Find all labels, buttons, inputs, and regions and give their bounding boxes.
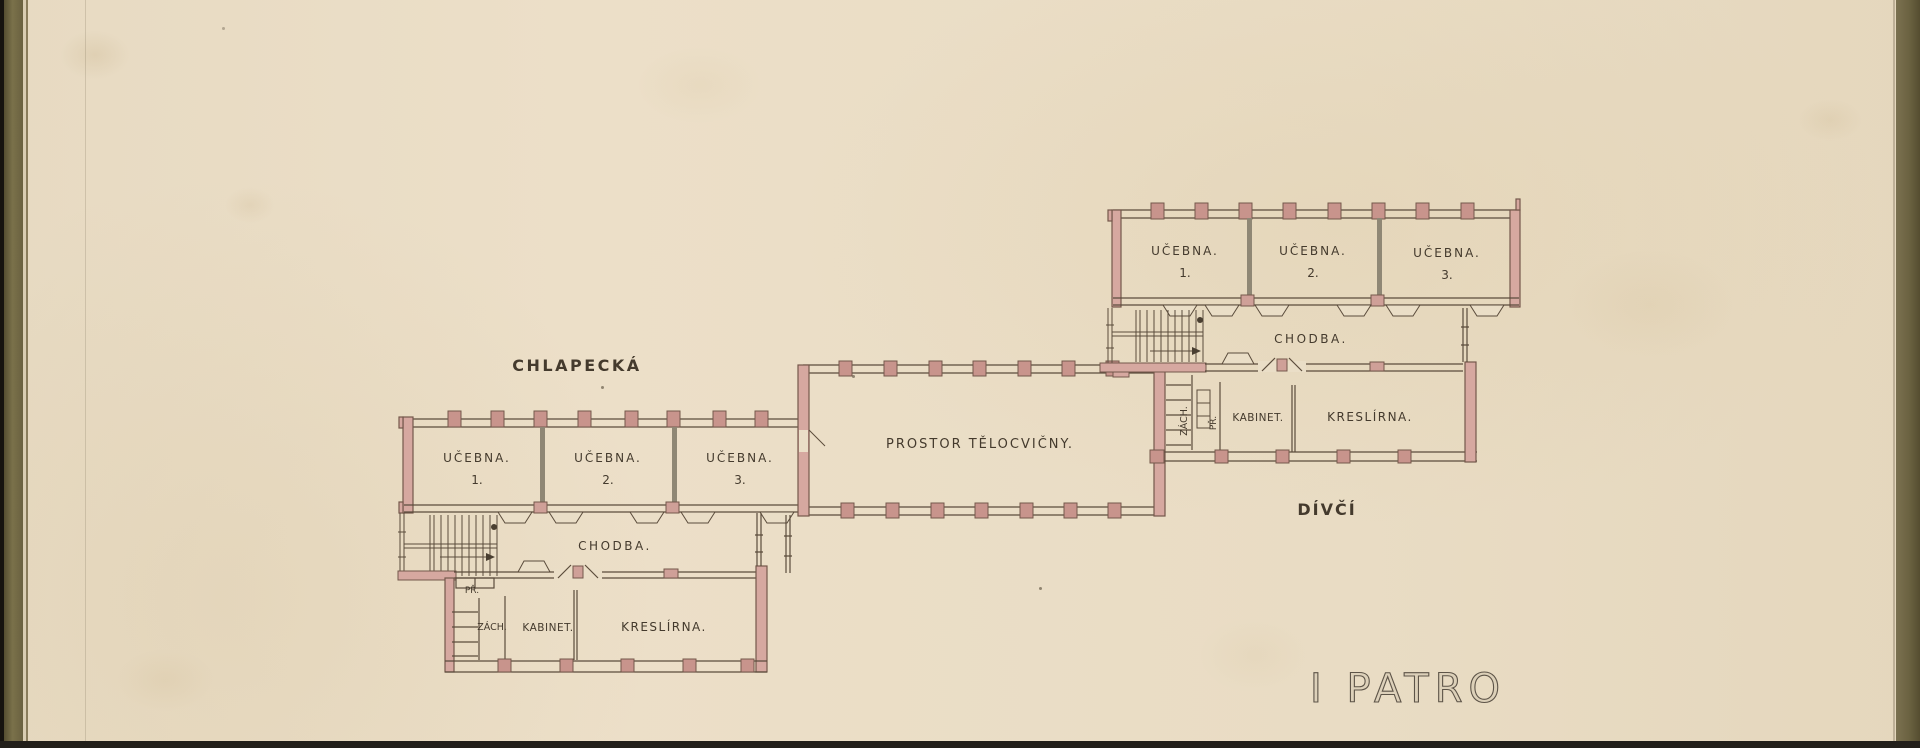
bottom-shadow-band bbox=[0, 741, 1920, 748]
gym-label: PROSTOR TĚLOCVIČNY. bbox=[886, 436, 1074, 452]
girls-classroom-1-label: UČEBNA. bbox=[1151, 243, 1219, 258]
door-swing bbox=[518, 561, 550, 572]
gym-west-door-swing bbox=[809, 430, 825, 446]
boys-classroom-3-label: UČEBNA. bbox=[706, 450, 774, 465]
sheet-edge-right bbox=[1893, 0, 1895, 748]
door-pier bbox=[534, 502, 547, 513]
girls-top-wall bbox=[1113, 210, 1519, 218]
mat-edge-shadow-left bbox=[26, 0, 28, 748]
floor-plan-svg: CHLAPECKÁ DÍVČÍ PROSTOR TĚLOCVIČNY. UČEB… bbox=[0, 0, 1920, 748]
gym-north-piers bbox=[839, 361, 1119, 376]
wall-bump bbox=[399, 417, 403, 428]
girls-bottom-wall bbox=[1150, 452, 1477, 461]
girls-partition-cabinet-drawingroom bbox=[1292, 385, 1295, 452]
boys-bottom-wall bbox=[445, 661, 767, 672]
boys-wing-label: CHLAPECKÁ bbox=[512, 356, 641, 375]
wall-bump bbox=[399, 502, 403, 513]
boys-corridor-south-wall bbox=[454, 572, 766, 578]
boys-drawing-room-label: KRESLÍRNA. bbox=[621, 619, 707, 634]
boys-partition-1 bbox=[540, 427, 545, 505]
wall-bump bbox=[1108, 210, 1112, 221]
wall-bump bbox=[1113, 372, 1129, 377]
sheet-edge-left bbox=[85, 0, 86, 748]
girls-classroom-door-swings bbox=[1163, 305, 1504, 316]
mat-edge-olive-right bbox=[1896, 0, 1920, 748]
mat-edge-olive-left bbox=[4, 0, 23, 748]
door-pier bbox=[1371, 295, 1384, 306]
gym-west-door-opening bbox=[799, 430, 808, 452]
girls-classroom-1-number: 1. bbox=[1179, 266, 1190, 280]
girls-vestibule-label: PŘ. bbox=[1208, 416, 1219, 430]
girls-top-wall-piers bbox=[1151, 203, 1474, 219]
fixture-dividers bbox=[1197, 403, 1210, 416]
scanned-drawing-page: { "page": { "floor_title": "I PATRO" }, … bbox=[0, 0, 1920, 748]
stair-direction-dot bbox=[1197, 317, 1203, 323]
boys-classroom-3-number: 3. bbox=[734, 473, 745, 487]
door-pier bbox=[666, 502, 679, 513]
boys-toilet-stalls bbox=[452, 598, 479, 660]
boys-top-wall bbox=[404, 419, 803, 427]
door-post bbox=[573, 566, 583, 578]
stair-direction-dot bbox=[491, 524, 497, 530]
door-post bbox=[1277, 359, 1287, 371]
boys-west-wall bbox=[403, 417, 413, 513]
girls-east-wall bbox=[1510, 210, 1520, 307]
boys-classroom-2-label: UČEBNA. bbox=[574, 450, 642, 465]
boys-lower-east-wall bbox=[756, 566, 767, 672]
girls-wing-label: DÍVČÍ bbox=[1297, 500, 1356, 519]
wall-pier bbox=[664, 569, 678, 578]
boys-stairs-treads bbox=[430, 515, 497, 576]
girls-corridor-east-wall bbox=[1461, 308, 1469, 362]
girls-classroom-2-label: UČEBNA. bbox=[1279, 243, 1347, 258]
girls-corridor-south-wall bbox=[1205, 364, 1463, 371]
boys-classroom-1-number: 1. bbox=[471, 473, 482, 487]
girls-toilet-label: ZÁCH. bbox=[1178, 406, 1190, 435]
boys-vestibule-label: PŘ. bbox=[465, 585, 479, 596]
boys-classroom-1-label: UČEBNA. bbox=[443, 450, 511, 465]
girls-classroom-2-number: 2. bbox=[1307, 266, 1318, 280]
girls-drawing-room-label: KRESLÍRNA. bbox=[1327, 409, 1413, 424]
wall-bump bbox=[1516, 199, 1520, 210]
girls-classroom-3-number: 3. bbox=[1441, 268, 1452, 282]
girls-west-wall bbox=[1112, 210, 1121, 307]
boys-lower-west-wall bbox=[445, 578, 454, 672]
boys-corridor-east-wall bbox=[755, 513, 763, 566]
girls-stair-south-wall bbox=[1100, 363, 1206, 372]
wall-pier bbox=[1370, 362, 1384, 371]
gym-east-wall bbox=[1154, 365, 1165, 516]
boys-corridor-label: CHODBA. bbox=[578, 539, 652, 553]
door-swing bbox=[1222, 353, 1254, 364]
boys-cabinet-label: KABINET. bbox=[522, 622, 573, 634]
door-pier bbox=[1241, 295, 1254, 306]
boys-stairs bbox=[398, 513, 497, 578]
boys-partition-2 bbox=[672, 427, 677, 505]
gym-south-piers bbox=[841, 503, 1121, 518]
boys-classroom-2-number: 2. bbox=[602, 473, 613, 487]
girls-partition-1 bbox=[1247, 218, 1252, 298]
boys-bar-bottom-wall bbox=[404, 505, 800, 512]
girls-classroom-3-label: UČEBNA. bbox=[1413, 245, 1481, 260]
girls-cabinet-label: KABINET. bbox=[1232, 412, 1283, 424]
girls-lower-east-wall bbox=[1465, 362, 1476, 462]
boys-toilet-label: ZÁCH. bbox=[477, 621, 506, 633]
girls-corridor-label: CHODBA. bbox=[1274, 332, 1348, 346]
floor-title: I PATRO bbox=[1310, 666, 1506, 712]
girls-bar-bottom-wall bbox=[1113, 298, 1519, 305]
boys-classroom-door-swings bbox=[498, 512, 794, 523]
boys-gym-link-wall bbox=[784, 515, 792, 573]
boys-partition-cabinet-drawingroom bbox=[574, 590, 577, 660]
girls-partition-2 bbox=[1377, 218, 1382, 298]
